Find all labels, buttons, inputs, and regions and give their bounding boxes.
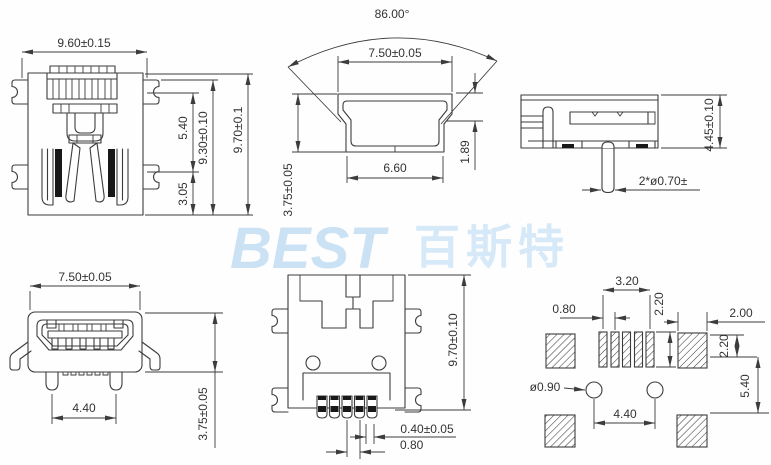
engineering-drawing-page: BEST 百斯特 9.60±0.15 5.40 [0, 0, 771, 465]
pcb-pad-length-dim: 2.20 [652, 292, 666, 316]
mount-pad [678, 333, 707, 368]
contact-bar-right [108, 149, 115, 197]
mini-usb-dimension-drawing: BEST 百斯特 9.60±0.15 5.40 [0, 0, 771, 465]
plug-angle-dim: 86.00° [375, 7, 410, 21]
rear-total-height-dim: 9.70±0.1 [231, 106, 245, 153]
signal-pads [599, 332, 654, 367]
view-top: 9.70±0.10 0.40±0.05 0.80 [272, 275, 471, 459]
mount-pad [677, 415, 707, 447]
view-pcb-layout: 3.20 0.80 2.20 2.00 2.20 5.40 ø0.90 4.40 [530, 274, 769, 447]
front-width-dim: 7.50±0.05 [58, 270, 112, 284]
pcb-hole-dia-dim: ø0.90 [530, 380, 561, 394]
view-side: 2*ø0.70± 4.45±0.10 [521, 95, 727, 193]
mount-pad [546, 334, 575, 368]
contact-bar-left [55, 149, 62, 197]
rear-shell-height-dim: 9.30±0.10 [196, 111, 210, 165]
pcb-pad-pitch-dim: 0.80 [552, 302, 576, 316]
rear-width-dim: 9.60±0.15 [57, 36, 111, 50]
plug-height-dim: 3.75±0.05 [281, 163, 295, 217]
drill-hole [586, 382, 602, 398]
pcb-row-gap-dim: 5.40 [738, 374, 752, 398]
through-hole-leg [46, 372, 58, 390]
view-plug-profile: 86.00° 7.50±0.05 6.60 1.89 3.75±0.05 [281, 7, 497, 217]
view-rear: 9.60±0.15 5.40 3.05 9.30±0.10 9.70±0.1 [12, 36, 253, 215]
pcb-pad-span-dim: 3.20 [615, 274, 639, 288]
mount-pad [545, 415, 575, 447]
top-pin-width-dim: 0.40±0.05 [400, 422, 454, 436]
through-hole-leg [110, 372, 122, 390]
solder-pin [602, 142, 614, 148]
plug-top-width-dim: 7.50±0.05 [368, 46, 422, 60]
watermark: BEST 百斯特 [230, 216, 570, 281]
watermark-logo-text: BEST [230, 216, 389, 281]
smt-pins [317, 396, 377, 418]
plug-lip-height-dim: 1.89 [458, 140, 472, 164]
watermark-cjk-text: 百斯特 [414, 221, 570, 273]
front-height-dim: 3.75±0.05 [196, 387, 210, 441]
view-front: 7.50±0.05 4.40 3.75±0.05 [10, 270, 223, 448]
pcb-side-pad-width-dim: 2.00 [729, 306, 753, 320]
side-pin-note: 2*ø0.70± [639, 174, 688, 188]
locating-hole [306, 356, 320, 370]
contact-comb [48, 331, 122, 338]
pcb-hole-span-dim: 4.40 [613, 407, 637, 421]
front-leg-span-dim: 4.40 [72, 401, 96, 415]
rear-lower-height-dim: 3.05 [176, 182, 190, 206]
rear-upper-height-dim: 5.40 [176, 116, 190, 140]
pcb-side-pad-offset-dim: 2.20 [717, 334, 731, 358]
locating-hole [372, 356, 386, 370]
side-height-dim: 4.45±0.10 [702, 98, 716, 152]
drill-hole [647, 382, 663, 398]
plug-bottom-width-dim: 6.60 [383, 161, 407, 175]
top-pin-pitch-dim: 0.80 [400, 438, 424, 452]
top-length-dim: 9.70±0.10 [446, 313, 460, 367]
